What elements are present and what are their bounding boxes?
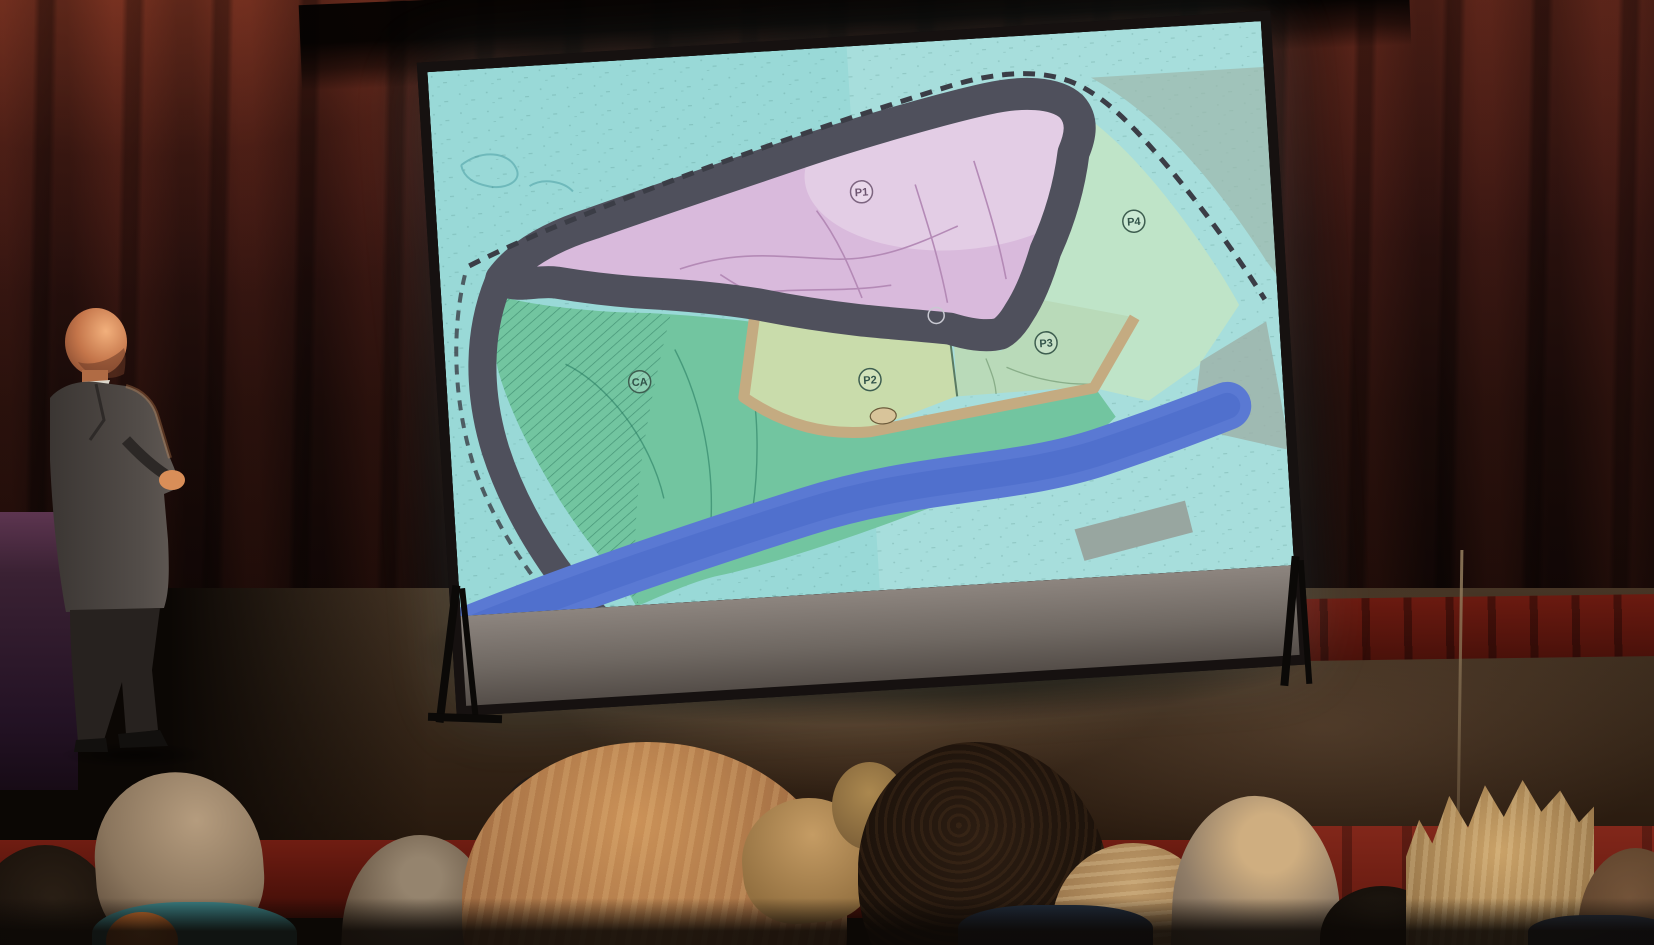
zone-label-p4: P4	[1122, 210, 1145, 233]
svg-text:P3: P3	[1039, 337, 1053, 350]
projection-screen: P1 CA P2 P3	[417, 11, 1310, 717]
zoning-map-svg: P1 CA P2 P3	[427, 21, 1294, 616]
auditorium-photo: P1 CA P2 P3	[0, 0, 1654, 945]
presenter-figure	[28, 288, 218, 768]
zone-label-ca: CA	[628, 370, 651, 393]
presenter-hand	[159, 470, 185, 490]
presenter-trousers	[70, 608, 160, 742]
svg-text:P4: P4	[1127, 216, 1142, 229]
zone-label-p2: P2	[858, 368, 881, 391]
audience-shoulders-row	[0, 898, 1654, 945]
zone-label-p3: P3	[1034, 331, 1057, 354]
zone-label-p1: P1	[850, 180, 873, 203]
svg-text:P1: P1	[854, 186, 868, 199]
svg-text:CA: CA	[631, 376, 648, 389]
svg-text:P2: P2	[863, 374, 877, 387]
slide-map: P1 CA P2 P3	[427, 21, 1294, 616]
